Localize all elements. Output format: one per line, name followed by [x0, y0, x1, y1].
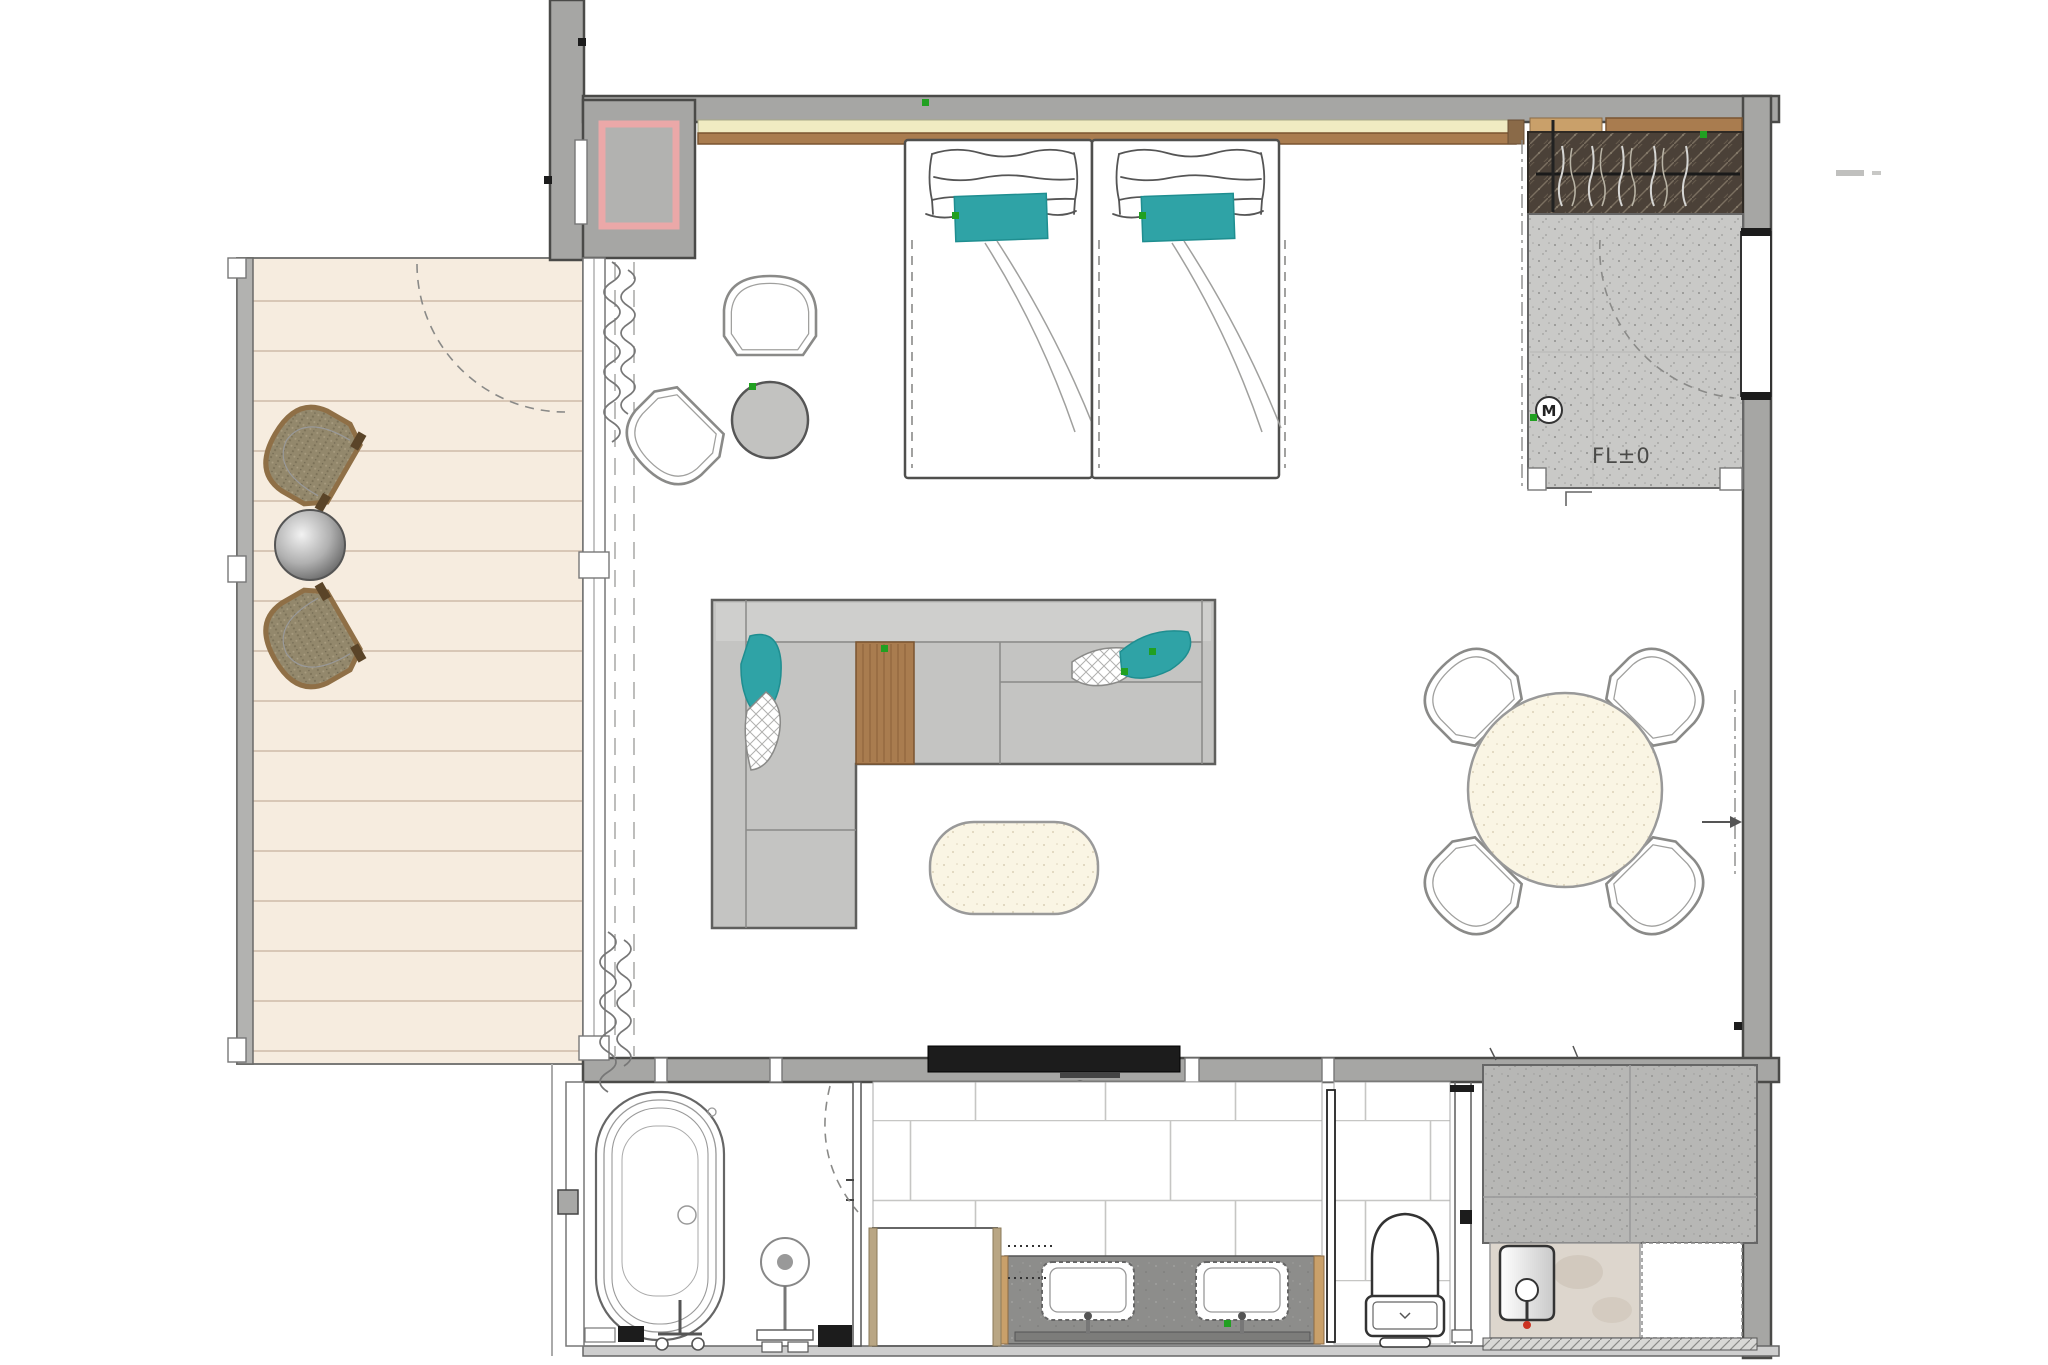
headboard-shelf	[698, 120, 1516, 133]
entry-zone: M FL±0	[1522, 118, 1771, 506]
living-zone	[712, 600, 1742, 949]
ottoman	[930, 822, 1098, 914]
balcony-rail-wall	[237, 258, 253, 1064]
pipe-shaft	[575, 100, 695, 258]
toilet-door-frame	[1450, 1082, 1474, 1344]
wall-mounted-tv	[928, 1046, 1180, 1072]
door-symbol-label: M	[1542, 402, 1557, 420]
closet-shelf-left	[1530, 118, 1602, 132]
toilet	[1366, 1214, 1444, 1347]
balcony-side-table	[275, 510, 345, 580]
soap-shelf	[818, 1325, 852, 1347]
curtain-squiggle-top	[604, 262, 620, 442]
storage-counter	[1483, 1065, 1757, 1243]
bed-2	[1092, 140, 1281, 478]
balcony	[228, 258, 583, 1064]
dining-table	[1468, 693, 1662, 887]
toilet-room	[1327, 1082, 1474, 1347]
storage-area	[1483, 1065, 1757, 1350]
toilet-partition-left	[1327, 1090, 1335, 1342]
vanity-cabinet	[869, 1228, 1001, 1346]
bedroom-chair-2	[612, 378, 733, 499]
bed-1	[905, 140, 1094, 478]
bedroom-zone	[612, 120, 1524, 499]
bathtub	[585, 1092, 724, 1350]
floor-plan-drawing: M FL±0	[0, 0, 2048, 1365]
closet-shelf-right	[1606, 118, 1742, 132]
floor-level-label: FL±0	[1592, 444, 1651, 468]
vanity-area	[869, 1082, 1324, 1346]
shower-glass-partition	[853, 1082, 861, 1346]
bathroom	[585, 1082, 861, 1352]
storage-threshold	[1483, 1338, 1757, 1350]
bedroom-side-table	[732, 382, 808, 458]
water-heater	[1500, 1246, 1554, 1329]
bedroom-chair-1	[724, 276, 816, 355]
utility-base-white	[1642, 1243, 1742, 1338]
vanity-counter	[998, 1256, 1324, 1344]
dining-set	[1410, 634, 1718, 949]
wall-arrow-mark	[1702, 816, 1742, 828]
shower	[757, 1238, 813, 1352]
reference-dash	[1836, 170, 1864, 176]
floor-plan-page: M FL±0	[0, 0, 2048, 1365]
entrance-door	[1741, 228, 1771, 400]
window-wall	[579, 258, 635, 1092]
